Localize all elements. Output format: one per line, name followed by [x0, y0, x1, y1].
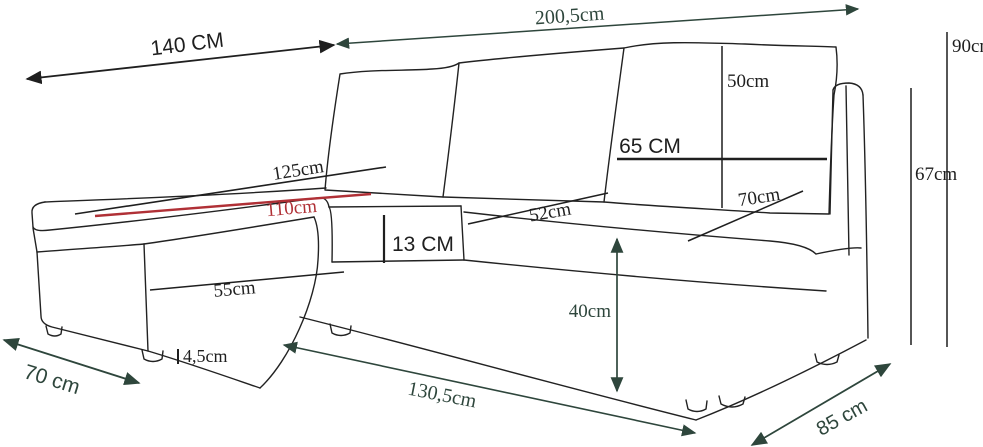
dimension-chaise-length-top: 140 CM [27, 29, 334, 79]
dimension-front-floor-length: 130,5cm [284, 345, 695, 433]
base-bottom-edge [300, 317, 696, 420]
dimension-seat-height: 40cm [569, 239, 617, 391]
dimension-label-back-height: 67cm [915, 164, 957, 185]
dimension-side-floor-depth: 85 cm [752, 364, 890, 445]
sofa-dimension-diagram: 140 CM200,5cm90cm67cm50cm65 CM70cm125cm1… [0, 0, 983, 447]
chaise-inner-right [260, 217, 319, 388]
dimension-label-seat-cushion-thickness: 13 CM [392, 233, 454, 256]
band-bottom [332, 260, 464, 262]
dimension-label-front-floor-length: 130,5cm [406, 378, 479, 413]
dimension-annotations: 140 CM200,5cm90cm67cm50cm65 CM70cm125cm1… [4, 3, 983, 445]
chaise-left-end [32, 202, 45, 227]
cushion-2 [443, 48, 624, 202]
chaise-base-corner [144, 244, 148, 351]
armrest-inner-edge [846, 86, 849, 255]
chaise-inner-top [144, 217, 314, 244]
dimension-cushion-height: 50cm [722, 46, 769, 208]
dimension-line-front-floor-length [284, 345, 695, 433]
dimension-label-total-height: 90cm [952, 36, 983, 57]
seat-front-edge [464, 212, 816, 254]
leg-front-right [686, 400, 707, 412]
armrest-right-edge [863, 95, 868, 338]
diagram-canvas: 140 CM200,5cm90cm67cm50cm65 CM70cm125cm1… [0, 0, 983, 447]
dimension-label-cushion-width: 65 CM [619, 135, 681, 158]
dimension-chaise-front-width: 55cm [150, 272, 344, 302]
sofa-armrest [830, 83, 868, 338]
dimension-leg-height: 4,5cm [178, 346, 228, 366]
dimension-label-chaise-length-top: 140 CM [149, 29, 225, 61]
side-top-edge [816, 248, 861, 254]
dimension-backrest-depth: 70cm [688, 184, 803, 241]
dimension-label-leg-height: 4,5cm [183, 346, 228, 366]
dimension-label-total-length: 200,5cm [534, 3, 605, 30]
dimension-label-chaise-surface-length: 125cm [271, 156, 326, 185]
armrest-top [833, 83, 863, 95]
dimension-label-backrest-depth: 70cm [737, 184, 782, 211]
dimension-total-height: 90cm [947, 32, 983, 347]
cushion-3 [604, 43, 837, 214]
front-seam [464, 260, 826, 291]
chaise-slab-side [33, 228, 37, 252]
dimension-chaise-floor-width: 70 cm [4, 340, 139, 399]
band-module-edge [461, 206, 464, 260]
sofa-outline [32, 43, 868, 420]
dimension-seat-cushion-thickness: 13 CM [384, 215, 454, 263]
dimension-label-side-floor-depth: 85 cm [813, 395, 871, 441]
dimension-back-height: 67cm [911, 88, 957, 345]
dimension-label-seat-height: 40cm [569, 301, 611, 322]
dimension-label-cushion-height: 50cm [727, 71, 769, 92]
dimension-label-chaise-floor-width: 70 cm [21, 360, 82, 399]
band-top [329, 206, 461, 207]
band-left [329, 207, 332, 262]
dimension-label-chaise-front-width: 55cm [213, 277, 257, 302]
dimension-total-length: 200,5cm [337, 3, 858, 44]
cushion-1 [325, 63, 459, 197]
dimension-label-chaise-sleep-length: 110cm [265, 196, 318, 221]
chaise-base-top [37, 244, 144, 252]
